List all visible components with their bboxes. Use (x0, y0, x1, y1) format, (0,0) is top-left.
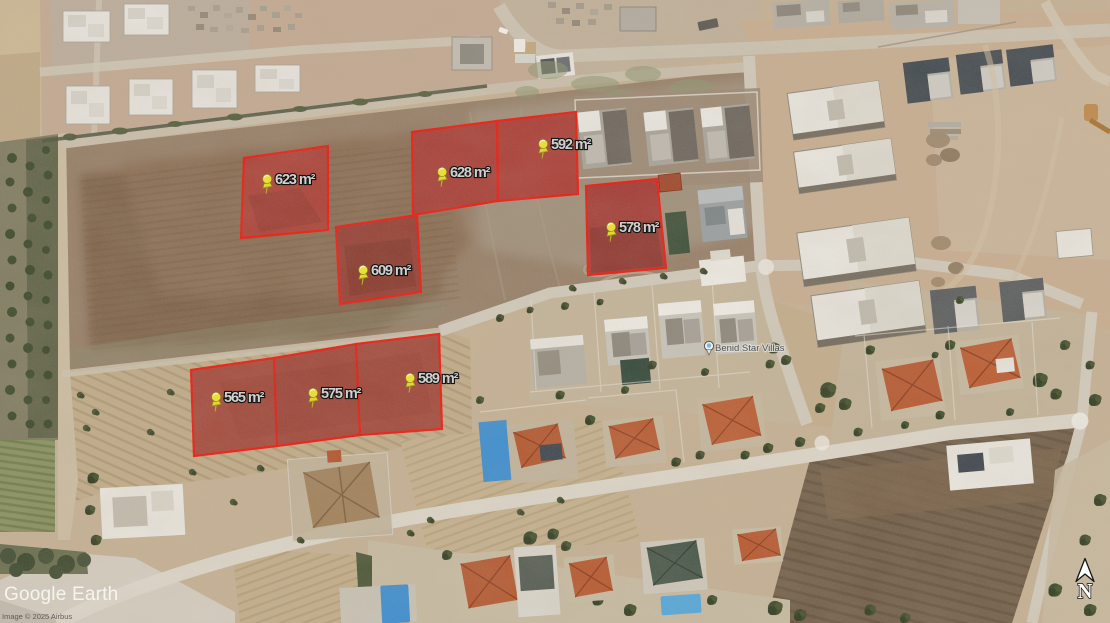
svg-text:Image © 2025 Airbus: Image © 2025 Airbus (2, 612, 72, 621)
svg-text:Google Earth: Google Earth (4, 584, 118, 605)
svg-text:N: N (1077, 579, 1092, 603)
